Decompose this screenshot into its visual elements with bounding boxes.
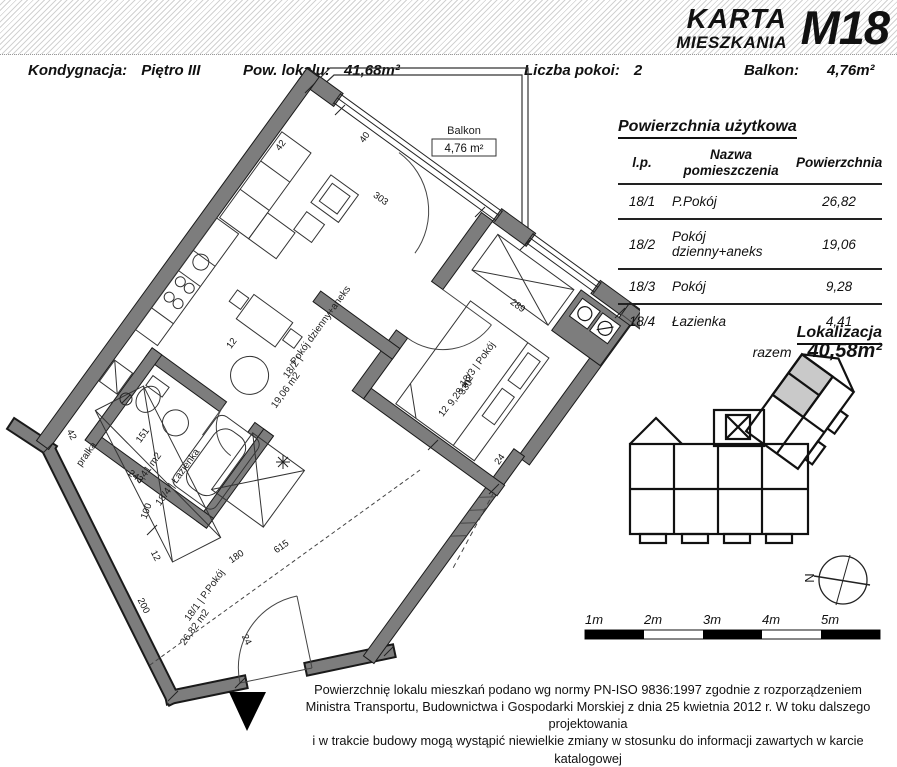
info-balcony-label: Balkon: bbox=[744, 62, 799, 79]
scale-label: 3m bbox=[703, 612, 721, 627]
scale-bar: 1m 2m 3m 4m 5m bbox=[585, 612, 880, 639]
card-title-line2: MIESZKANIA bbox=[676, 34, 787, 51]
table-row: 18/2 Pokój dzienny+aneks 19,06 bbox=[618, 220, 882, 270]
dim: 615 bbox=[272, 538, 291, 556]
unit-number: M18 bbox=[801, 0, 889, 55]
scale-label: 5m bbox=[821, 612, 839, 627]
pillow bbox=[482, 388, 514, 424]
footer-line: Ministra Transportu, Budownictwa i Gospo… bbox=[282, 698, 894, 732]
pillow bbox=[508, 353, 540, 389]
dim: 12 bbox=[148, 549, 163, 563]
highlighted-unit bbox=[773, 354, 833, 417]
col-lp: l.p. bbox=[618, 155, 666, 171]
washer-label: pralka bbox=[75, 440, 100, 469]
area-table-title: Powierzchnia użytkowa bbox=[618, 118, 797, 139]
left-gable bbox=[630, 418, 682, 444]
col-name: Nazwa pomieszczenia bbox=[666, 147, 796, 178]
dim: 289 bbox=[508, 297, 527, 315]
dim: 42 bbox=[64, 428, 79, 442]
footer-line: i w trakcie budowy mogą wystąpić niewiel… bbox=[282, 732, 894, 766]
round-table bbox=[223, 349, 276, 402]
bathroom-door-leaf bbox=[202, 407, 223, 435]
balcony-area: 4,76 m² bbox=[445, 143, 484, 155]
dim: 12 bbox=[224, 336, 239, 351]
localization-map bbox=[622, 352, 887, 547]
side-table bbox=[294, 212, 325, 243]
stove-burner bbox=[162, 290, 176, 304]
card-title-line1: KARTA bbox=[676, 5, 787, 34]
col-area: Powierzchnia bbox=[796, 155, 882, 171]
chair bbox=[229, 290, 249, 310]
bathroom-door-arc bbox=[202, 407, 251, 456]
dim: 180 bbox=[227, 548, 246, 566]
dim: 100 bbox=[139, 502, 155, 521]
card-title: KARTA MIESZKANIA bbox=[676, 5, 787, 51]
scale-label: 4m bbox=[762, 612, 780, 627]
dim: 24 bbox=[239, 633, 254, 647]
bedroom-door-leaf bbox=[443, 290, 492, 325]
table-row: 18/3 Pokój 9,28 bbox=[618, 270, 882, 305]
scale-label: 2m bbox=[643, 612, 662, 627]
star-symbol bbox=[276, 455, 290, 469]
armchair bbox=[311, 175, 358, 222]
scale-label: 1m bbox=[585, 612, 603, 627]
balcony-label: Balkon bbox=[447, 125, 481, 137]
compass-north-label: N bbox=[802, 573, 817, 582]
sofa-corner bbox=[249, 213, 295, 259]
compass bbox=[814, 555, 870, 605]
outer-walls-lower bbox=[16, 427, 388, 697]
stove-burner bbox=[182, 281, 196, 295]
compass-and-scale: N 1m 2m 3m 4m 5m bbox=[578, 545, 897, 657]
triangle-marker-icon bbox=[229, 692, 266, 731]
info-balcony: Balkon:4,76m² bbox=[744, 62, 875, 79]
floor-plan: Balkon 4,76 m² Pokój dzienny+aneks 18/2 … bbox=[0, 60, 640, 740]
stove-burner bbox=[171, 297, 185, 311]
apartment-card: { "header": {"title_line1": "KARTA", "ti… bbox=[0, 0, 897, 748]
dim: 303 bbox=[371, 190, 390, 208]
dining-table bbox=[236, 294, 292, 346]
dim: 12 bbox=[436, 404, 451, 419]
footer-note: Powierzchnię lokalu mieszkań podano wg n… bbox=[282, 681, 894, 767]
localization-title: Lokalizacja bbox=[702, 324, 882, 345]
kitchen-sink bbox=[190, 251, 212, 273]
info-balcony-value: 4,76m² bbox=[827, 62, 875, 79]
table-row: 18/1 P.Pokój 26,82 bbox=[618, 185, 882, 220]
stove-burner bbox=[173, 275, 187, 289]
right-wall-jog bbox=[363, 449, 524, 664]
area-table-header: l.p. Nazwa pomieszczenia Powierzchnia bbox=[618, 147, 882, 185]
footer-line: Powierzchnię lokalu mieszkań podano wg n… bbox=[282, 681, 894, 698]
dim: 151 bbox=[134, 426, 152, 445]
